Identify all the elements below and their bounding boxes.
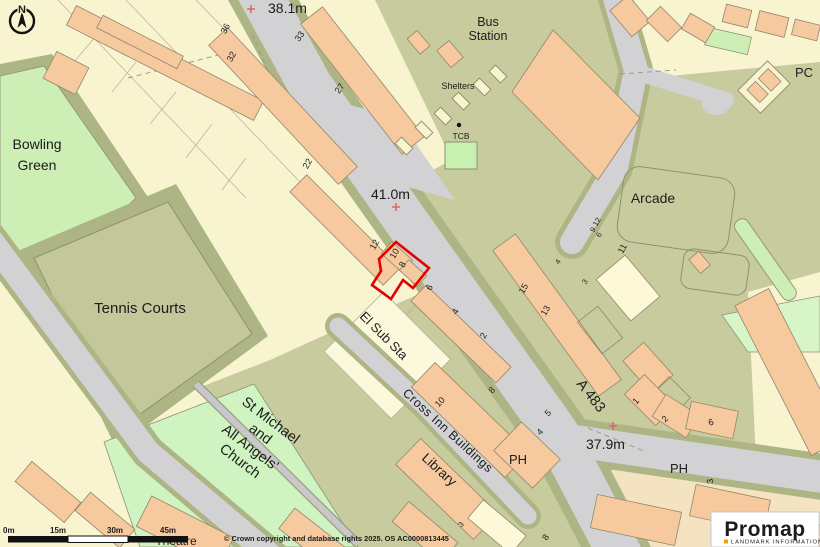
label-ph-east: PH bbox=[670, 461, 688, 476]
copyright-notice: © Crown copyright and database rights 20… bbox=[224, 534, 449, 543]
scale-tick-0: 0m bbox=[3, 526, 15, 535]
promap-wordmark: Promap bbox=[724, 518, 805, 541]
promap-logo: Promap LANDMARK INFORMATION bbox=[711, 512, 820, 547]
label-pc: PC bbox=[795, 65, 813, 80]
scale-tick-30: 30m bbox=[107, 526, 123, 535]
logo-tagline: LANDMARK INFORMATION bbox=[731, 540, 820, 546]
tcb-point bbox=[457, 123, 461, 127]
compass-north-label: N bbox=[18, 4, 26, 16]
label-tcb: TCB bbox=[453, 131, 470, 141]
label-bowling-green-1: Bowling bbox=[12, 136, 61, 152]
spot-height-mid: 41.0m bbox=[371, 186, 410, 202]
label-bus-station-2: Station bbox=[469, 29, 508, 43]
scale-tick-15: 15m bbox=[50, 526, 66, 535]
spot-height-south: 37.9m bbox=[586, 436, 625, 452]
turning-head bbox=[702, 93, 730, 115]
spot-height-north: 38.1m bbox=[268, 0, 307, 16]
house-number: 3 bbox=[705, 478, 715, 484]
label-bowling-green-2: Green bbox=[18, 157, 57, 173]
label-tennis-courts: Tennis Courts bbox=[94, 300, 186, 317]
map-canvas[interactable]: 36 32 33 27 22 12 10 8 6 4 2 15 13 11 12… bbox=[0, 0, 820, 547]
logo-accent-dot bbox=[724, 540, 728, 544]
scale-tick-45: 45m bbox=[160, 526, 176, 535]
label-arcade: Arcade bbox=[631, 190, 676, 206]
label-ph-west: PH bbox=[509, 452, 527, 467]
label-shelters: Shelters bbox=[441, 81, 475, 91]
tcb-building bbox=[445, 142, 477, 169]
label-bus-station-1: Bus bbox=[477, 15, 499, 29]
os-map: 36 32 33 27 22 12 10 8 6 4 2 15 13 11 12… bbox=[0, 0, 820, 547]
